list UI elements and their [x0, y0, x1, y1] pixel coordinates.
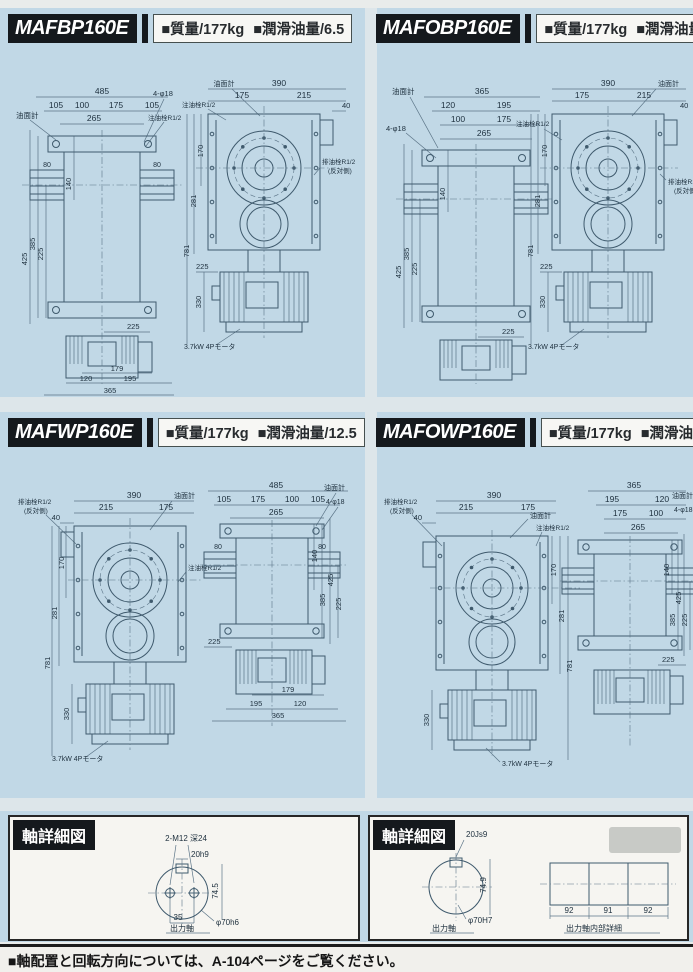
dim: 225 — [680, 614, 689, 627]
header-separator — [530, 418, 536, 447]
dim: 179 — [111, 364, 124, 373]
dim: 281 — [189, 195, 198, 208]
dim: 74.9 — [479, 877, 488, 893]
dim: 425 — [326, 574, 335, 587]
header-separator — [525, 14, 531, 43]
drawing-mafbp160e-face-view: 油面計 注油栓R1/2 390 175 215 40 排油栓R1/2 (反対側)… — [182, 76, 360, 382]
dim: 225 — [127, 322, 140, 331]
header-separator — [147, 418, 153, 447]
oil-spec: ■潤滑油量/12.5 — [258, 422, 357, 443]
drawing-mafobp160e-face-view: 注油栓R1/2 油面計 390 175 215 40 排油栓R1/2 (反対側)… — [516, 76, 693, 382]
dim: 105 — [217, 494, 231, 504]
dim: 100 — [285, 494, 299, 504]
dim: 281 — [50, 607, 59, 620]
dim: 40 — [342, 101, 350, 110]
dim: 140 — [438, 188, 447, 201]
dim: 225 — [410, 263, 419, 276]
footer-note-bar: ■軸配置と回転方向については、A-104ページをご覧ください。 — [0, 944, 693, 972]
model-name: MAFWP160E — [8, 418, 142, 447]
oil-spec: ■潤滑油量/6.5 — [636, 18, 693, 39]
dim: 215 — [297, 90, 311, 100]
dim: 100 — [649, 508, 663, 518]
dim: 170 — [196, 145, 205, 158]
dimension-lines — [430, 840, 668, 933]
dim: 175 — [497, 114, 511, 124]
dim: 92 — [644, 906, 653, 915]
dim: 390 — [487, 490, 501, 500]
dim: 170 — [57, 557, 66, 570]
shaft-detail-title: 軸詳細図 — [13, 820, 95, 850]
dim: 385 — [668, 614, 677, 627]
dim: 175 — [521, 502, 535, 512]
mass-spec: ■質量/177kg — [161, 18, 244, 39]
dim: 215 — [459, 502, 473, 512]
dim: 140 — [662, 564, 671, 577]
drawing-mafwp160e-top-view: 485 105 175 100 105 265 油面計 4-φ18 80 80 … — [196, 478, 360, 796]
dim: 390 — [127, 490, 141, 500]
drain-note-label: (反対側) — [328, 166, 352, 175]
model-name: MAFBP160E — [8, 14, 137, 43]
oil-gauge-label: 油面計 — [658, 79, 679, 88]
dim: 175 — [159, 502, 173, 512]
drain-note-label: (反対側) — [24, 506, 48, 515]
dim: 225 — [334, 598, 343, 611]
dim: 265 — [87, 113, 101, 123]
dim: 425 — [20, 253, 29, 266]
spec-box: ■質量/177kg ■潤滑油量/6.5 — [153, 14, 352, 43]
dim: 390 — [601, 78, 615, 88]
dim: 330 — [62, 708, 71, 721]
caption: 出力軸 — [432, 923, 456, 933]
dim: 385 — [318, 594, 327, 607]
panel-header-mafwp160e: MAFWP160E ■質量/177kg ■潤滑油量/12.5 — [8, 418, 365, 447]
key-label: 20h9 — [191, 850, 209, 859]
drain-note-label: (反対側) — [674, 186, 693, 195]
dim: 175 — [575, 90, 589, 100]
dim: 40 — [52, 513, 60, 522]
shaft-detail-title: 軸詳細図 — [373, 820, 455, 850]
shaft-outline — [429, 858, 668, 914]
oil-gauge-label: 油面計 — [392, 86, 415, 96]
spec-box: ■質量/177kg ■潤滑油量/12.5 — [158, 418, 365, 447]
row-gap — [0, 397, 693, 412]
dim: 105 — [145, 100, 159, 110]
shaft-detail-panel-left: 軸詳細図 2-M12 深24 20h9 — [8, 815, 360, 941]
dim: 781 — [526, 245, 535, 258]
dim: 425 — [394, 266, 403, 279]
housing-outline — [208, 114, 333, 332]
dim: 170 — [549, 564, 558, 577]
dim: 35 — [174, 913, 183, 922]
column-gap — [365, 412, 377, 798]
panel-header-mafbp160e: MAFBP160E ■質量/177kg ■潤滑油量/6.5 — [8, 14, 352, 43]
bolt-holes-label: 4-φ18 — [326, 499, 345, 506]
caption: 出力軸 — [170, 923, 194, 933]
catalog-page: MAFBP160E ■質量/177kg ■潤滑油量/6.5 MAFOBP160E… — [0, 0, 693, 972]
dim: 781 — [43, 657, 52, 670]
row-gap — [0, 798, 693, 811]
dim: 195 — [250, 699, 263, 708]
dim: 175 — [251, 494, 265, 504]
dim: 170 — [540, 145, 549, 158]
dim: 195 — [124, 374, 137, 383]
dim: 74.5 — [211, 883, 220, 899]
caption: 出力軸内部詳細 — [566, 923, 622, 933]
spec-box: ■質量/177kg ■潤滑油量/12.5 — [541, 418, 693, 447]
dim: 425 — [674, 592, 683, 605]
dim: 485 — [95, 86, 109, 96]
oil-gauge-label: 油面計 — [324, 483, 345, 492]
dim: 80 — [318, 544, 326, 551]
dim: 225 — [208, 637, 221, 646]
mass-spec: ■質量/177kg — [544, 18, 627, 39]
key-label: 20Js9 — [466, 830, 488, 839]
housing-outline — [61, 526, 186, 744]
dim: 175 — [613, 508, 627, 518]
oil-gauge-label: 油面計 — [530, 511, 551, 520]
dim: 265 — [269, 507, 283, 517]
dim: 330 — [538, 296, 547, 309]
drain-note-label: (反対側) — [390, 506, 414, 515]
header-separator — [142, 14, 148, 43]
dim: 80 — [43, 162, 51, 169]
dim: 92 — [565, 906, 574, 915]
dim: 225 — [36, 248, 45, 261]
dim: 100 — [451, 114, 465, 124]
mass-spec: ■質量/177kg — [166, 422, 249, 443]
motor-label: 3.7kW 4Pモータ — [502, 759, 553, 768]
footer-note: ■軸配置と回転方向については、A-104ページをご覧ください。 — [0, 947, 693, 971]
dim: 195 — [497, 100, 511, 110]
dim: 80 — [153, 162, 161, 169]
motor-label: 3.7kW 4Pモータ — [528, 342, 579, 351]
oil-gauge-label: 油面計 — [174, 491, 195, 500]
dim: 385 — [402, 248, 411, 261]
dia-label: φ70H7 — [468, 916, 493, 925]
dim: 40 — [414, 513, 422, 522]
dim: 195 — [605, 494, 619, 504]
fill-plug-label: 注油栓R1/2 — [516, 119, 550, 128]
dim: 265 — [477, 128, 491, 138]
dia-label: φ70h6 — [216, 918, 240, 927]
oil-gauge-label: 油面計 — [214, 79, 235, 88]
bolt-holes-label: 4-φ18 — [386, 124, 406, 133]
dim: 179 — [282, 685, 295, 694]
dim: 120 — [80, 374, 93, 383]
dim: 225 — [196, 262, 209, 271]
drain-plug-label: 排油栓R1/2 — [322, 157, 356, 166]
drain-plug-label: 排油栓R1/2 — [668, 177, 693, 186]
bolt-holes-label: 4-φ18 — [153, 89, 173, 98]
dim: 330 — [422, 714, 431, 727]
dim: 105 — [311, 494, 325, 504]
drain-plug-label: 排油栓R1/2 — [384, 497, 418, 506]
dim: 215 — [99, 502, 113, 512]
mass-spec: ■質量/177kg — [549, 422, 632, 443]
dim: 781 — [182, 245, 191, 258]
dim: 265 — [631, 522, 645, 532]
dim: 91 — [604, 906, 613, 915]
dim: 100 — [75, 100, 89, 110]
drain-plug-label: 排油栓R1/2 — [18, 497, 52, 506]
oil-gauge-label: 油面計 — [672, 491, 693, 500]
dim: 175 — [235, 90, 249, 100]
dim: 365 — [104, 386, 117, 395]
drawing-mafowp160e-top-view: 365 195 120 175 100 265 油面計 4-φ18 140 22… — [560, 478, 693, 798]
dim: 385 — [28, 238, 37, 251]
fill-plug-label: 注油栓R1/2 — [148, 113, 182, 122]
drawing-mafbp160e-top-view: 485 105 100 175 105 265 油面計 4-φ18 注油栓R1/… — [14, 84, 189, 396]
housing-outline — [423, 536, 548, 750]
model-name: MAFOBP160E — [376, 14, 520, 43]
dim: 225 — [502, 327, 515, 336]
dim: 120 — [294, 699, 307, 708]
dim: 225 — [662, 655, 675, 664]
dim: 485 — [269, 480, 283, 490]
panel-header-mafobp160e: MAFOBP160E ■質量/177kg ■潤滑油量/6.5 — [376, 14, 693, 43]
dim: 40 — [680, 101, 688, 110]
dim: 120 — [441, 100, 455, 110]
housing-outline — [552, 114, 677, 332]
column-gap — [365, 8, 377, 397]
bolt-holes-label: 4-φ18 — [674, 507, 693, 514]
dim: 140 — [310, 550, 319, 563]
dim: 215 — [637, 90, 651, 100]
dim: 175 — [109, 100, 123, 110]
dim: 140 — [64, 178, 73, 191]
shaft-detail-panel-right: 軸詳細図 20Js9 — [368, 815, 689, 941]
dim: 365 — [475, 86, 489, 96]
panel-header-mafowp160e: MAFOWP160E ■質量/177kg ■潤滑油量/12.5 — [376, 418, 693, 447]
dim: 281 — [533, 195, 542, 208]
dim: 390 — [272, 78, 286, 88]
dim: 365 — [272, 711, 285, 720]
dim: 80 — [214, 544, 222, 551]
spec-box: ■質量/177kg ■潤滑油量/6.5 — [536, 14, 693, 43]
motor-label: 3.7kW 4Pモータ — [52, 754, 103, 763]
fill-plug-label: 注油栓R1/2 — [182, 100, 216, 109]
dim: 120 — [655, 494, 669, 504]
dim: 225 — [540, 262, 553, 271]
dim: 330 — [194, 296, 203, 309]
dim: 105 — [49, 100, 63, 110]
oil-spec: ■潤滑油量/12.5 — [641, 422, 693, 443]
motor-label: 3.7kW 4Pモータ — [184, 342, 235, 351]
model-name: MAFOWP160E — [376, 418, 525, 447]
tap-label: 2-M12 深24 — [165, 834, 207, 843]
oil-spec: ■潤滑油量/6.5 — [253, 18, 344, 39]
dimension-lines — [588, 491, 690, 665]
drawing-mafowp160e-face-view: 排油栓R1/2 (反対側) 390 215 175 40 油面計 注油栓R1/2… — [384, 488, 584, 794]
oil-gauge-label: 油面計 — [16, 110, 39, 120]
dim: 365 — [627, 480, 641, 490]
